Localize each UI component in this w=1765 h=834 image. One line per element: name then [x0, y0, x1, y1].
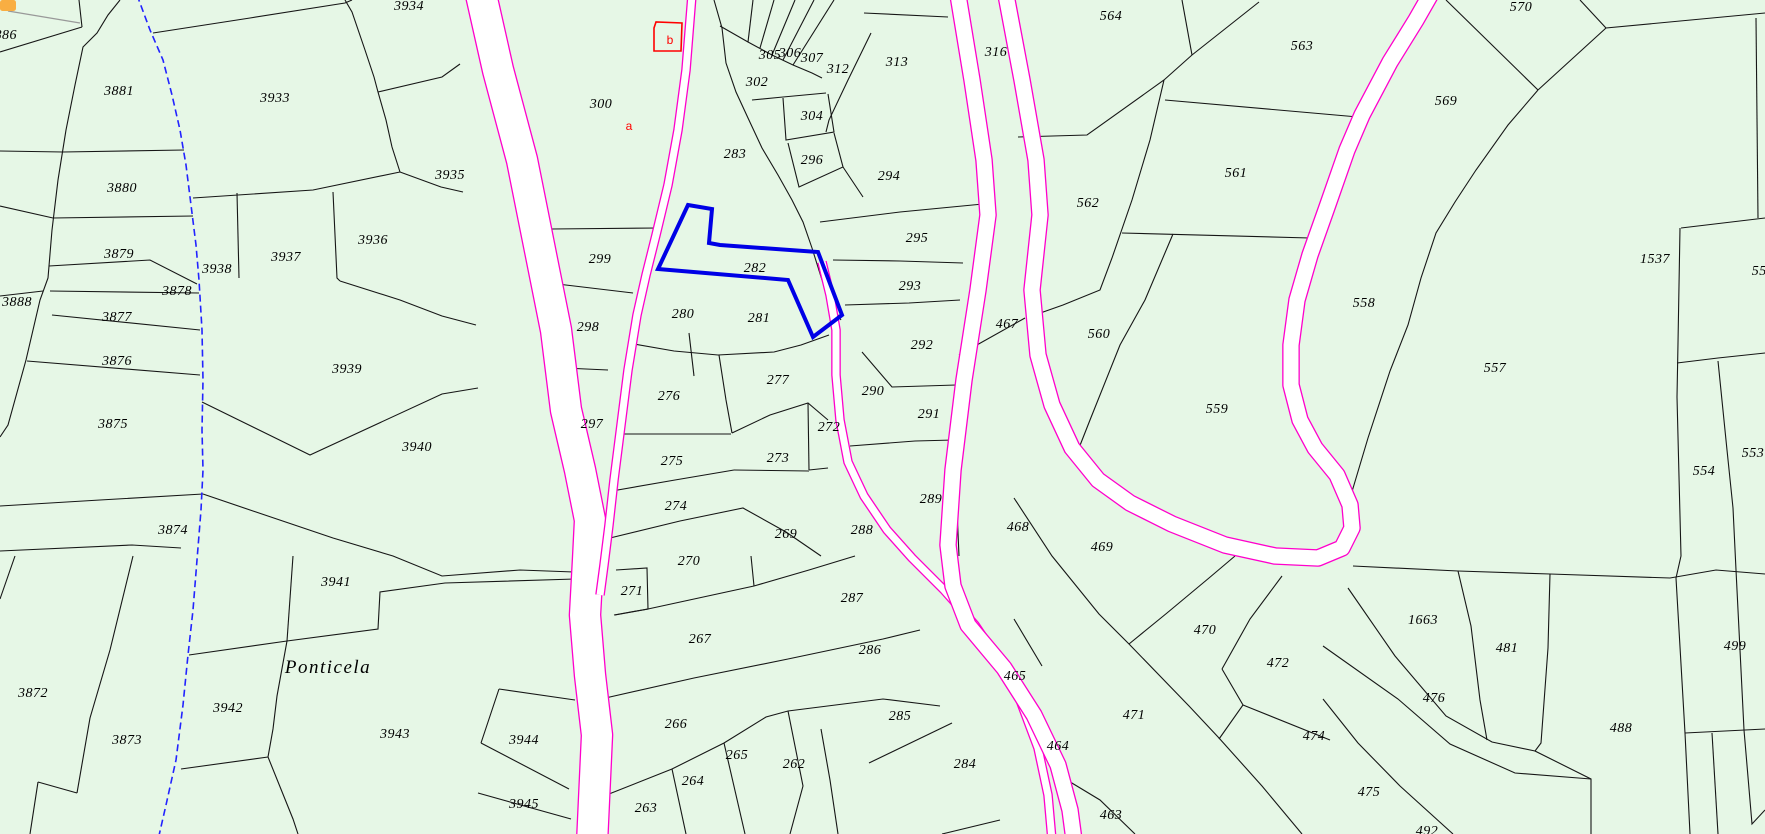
parcel-label-3943: 3943 [379, 727, 410, 742]
parcel-label-3873: 3873 [111, 733, 142, 748]
parcel-label-471: 471 [1123, 708, 1146, 723]
parcel-label-3872: 3872 [17, 686, 48, 701]
parcel-label-3875: 3875 [97, 417, 128, 432]
parcel-label-312: 312 [826, 62, 850, 77]
parcel-label-304: 304 [800, 109, 824, 124]
parcel-label-570: 570 [1510, 0, 1533, 15]
orange-landmark [0, 0, 16, 11]
parcel-label-3939: 3939 [331, 362, 362, 377]
parcel-label-468: 468 [1007, 520, 1030, 535]
parcel-label-3874: 3874 [157, 523, 188, 538]
parcel-label-287: 287 [841, 591, 864, 606]
annotation-a: a [626, 119, 633, 133]
parcel-label-463: 463 [1100, 808, 1123, 823]
parcel-label-288: 288 [851, 523, 874, 538]
parcel-label-275: 275 [661, 454, 684, 469]
parcel-label-562: 562 [1077, 196, 1100, 211]
parcel-label-286: 286 [859, 643, 882, 658]
parcel-label-305: 305 [758, 48, 782, 63]
parcel-label-557: 557 [1484, 361, 1507, 376]
parcel-label-285: 285 [889, 709, 912, 724]
parcel-label-569: 569 [1435, 94, 1458, 109]
cadastral-map-viewport[interactable]: 3886388139333934388038793938393739363935… [0, 0, 1765, 834]
parcel-label-3937: 3937 [270, 250, 302, 265]
parcel-label-296: 296 [801, 153, 824, 168]
parcel-label-300: 300 [589, 97, 613, 112]
parcel-label-481: 481 [1496, 641, 1519, 656]
parcel-label-3944: 3944 [508, 733, 539, 748]
parcel-label-475: 475 [1358, 785, 1381, 800]
parcel-label-282: 282 [744, 261, 767, 276]
parcel-label-3934: 3934 [393, 0, 424, 14]
parcel-label-3933: 3933 [259, 91, 290, 106]
parcel-label-276: 276 [658, 389, 681, 404]
parcel-label-316: 316 [984, 45, 1008, 60]
parcel-label-271: 271 [621, 584, 644, 599]
parcel-label-277: 277 [767, 373, 790, 388]
parcel-label-274: 274 [665, 499, 688, 514]
parcel-label-555: 555 [1752, 264, 1765, 279]
parcel-label-281: 281 [748, 311, 771, 326]
parcel-label-564: 564 [1100, 9, 1123, 24]
parcel-label-558: 558 [1353, 296, 1376, 311]
parcel-label-499: 499 [1724, 639, 1747, 654]
parcel-label-465: 465 [1004, 669, 1027, 684]
parcel-label-470: 470 [1194, 623, 1217, 638]
parcel-label-290: 290 [862, 384, 885, 399]
parcel-label-3878: 3878 [161, 284, 192, 299]
parcel-label-3945: 3945 [508, 797, 539, 812]
parcel-label-474: 474 [1303, 729, 1326, 744]
parcel-label-306: 306 [778, 46, 802, 61]
parcel-label-561: 561 [1225, 166, 1248, 181]
parcel-label-272: 272 [818, 420, 841, 435]
parcel-label-554: 554 [1693, 464, 1716, 479]
parcel-label-307: 307 [800, 51, 824, 66]
parcel-label-3879: 3879 [103, 247, 134, 262]
parcel-label-266: 266 [665, 717, 688, 732]
parcel-label-273: 273 [767, 451, 790, 466]
parcel-label-262: 262 [783, 757, 806, 772]
parcel-label-488: 488 [1610, 721, 1633, 736]
parcel-label-492: 492 [1416, 824, 1439, 834]
parcel-label-289: 289 [920, 492, 943, 507]
parcel-label-270: 270 [678, 554, 701, 569]
parcel-label-3881: 3881 [103, 84, 134, 99]
map-background [0, 0, 1765, 834]
parcel-label-464: 464 [1047, 739, 1070, 754]
parcel-label-467: 467 [996, 317, 1019, 332]
parcel-label-476: 476 [1423, 691, 1446, 706]
parcel-label-3940: 3940 [401, 440, 432, 455]
parcel-label-559: 559 [1206, 402, 1229, 417]
cadastral-map[interactable]: 3886388139333934388038793938393739363935… [0, 0, 1765, 834]
parcel-label-3888: 3888 [1, 295, 32, 310]
parcel-label-299: 299 [589, 252, 612, 267]
parcel-label-560: 560 [1088, 327, 1111, 342]
annotation-b: b [667, 33, 674, 47]
parcel-label-293: 293 [899, 279, 922, 294]
parcel-label-265: 265 [726, 748, 749, 763]
parcel-label-553: 553 [1742, 446, 1765, 461]
parcel-label-3936: 3936 [357, 233, 388, 248]
parcel-label-298: 298 [577, 320, 600, 335]
parcel-label-294: 294 [878, 169, 901, 184]
parcel-label-469: 469 [1091, 540, 1114, 555]
parcel-label-472: 472 [1267, 656, 1290, 671]
parcel-label-297: 297 [581, 417, 604, 432]
parcel-label-267: 267 [689, 632, 712, 647]
parcel-label-263: 263 [635, 801, 658, 816]
parcel-label-1663: 1663 [1408, 613, 1438, 628]
parcel-label-3942: 3942 [212, 701, 243, 716]
parcel-label-3880: 3880 [106, 181, 137, 196]
parcel-label-313: 313 [885, 55, 909, 70]
parcel-label-280: 280 [672, 307, 695, 322]
parcel-label-291: 291 [918, 407, 941, 422]
parcel-label-563: 563 [1291, 39, 1314, 54]
parcel-label-302: 302 [745, 75, 769, 90]
parcel-label-284: 284 [954, 757, 977, 772]
parcel-label-3935: 3935 [434, 168, 465, 183]
parcel-label-295: 295 [906, 231, 929, 246]
parcel-label-1537: 1537 [1640, 252, 1671, 267]
parcel-label-3877: 3877 [101, 310, 133, 325]
parcel-label-264: 264 [682, 774, 705, 789]
parcel-label-269: 269 [775, 527, 798, 542]
parcel-label-3941: 3941 [320, 575, 351, 590]
parcel-label-3876: 3876 [101, 354, 132, 369]
parcel-label-3938: 3938 [201, 262, 232, 277]
place-name-label: Ponticela [284, 657, 371, 678]
parcel-label-292: 292 [911, 338, 934, 353]
parcel-label-3886: 3886 [0, 28, 17, 43]
parcel-label-283: 283 [724, 147, 747, 162]
